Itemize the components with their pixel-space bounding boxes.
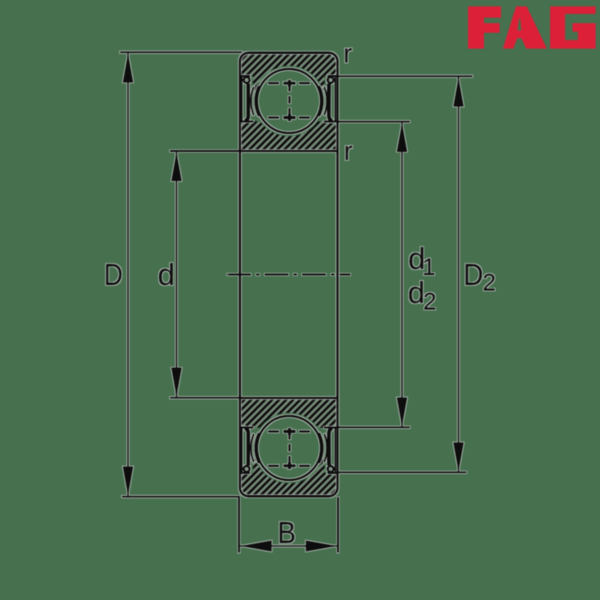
svg-text:D: D bbox=[463, 258, 483, 293]
svg-text:D: D bbox=[104, 258, 123, 293]
svg-text:2: 2 bbox=[483, 270, 496, 297]
svg-text:r: r bbox=[344, 136, 353, 166]
svg-text:r: r bbox=[343, 39, 352, 69]
svg-text:d: d bbox=[158, 257, 175, 292]
svg-text:2: 2 bbox=[423, 289, 436, 316]
svg-text:B: B bbox=[277, 515, 296, 550]
